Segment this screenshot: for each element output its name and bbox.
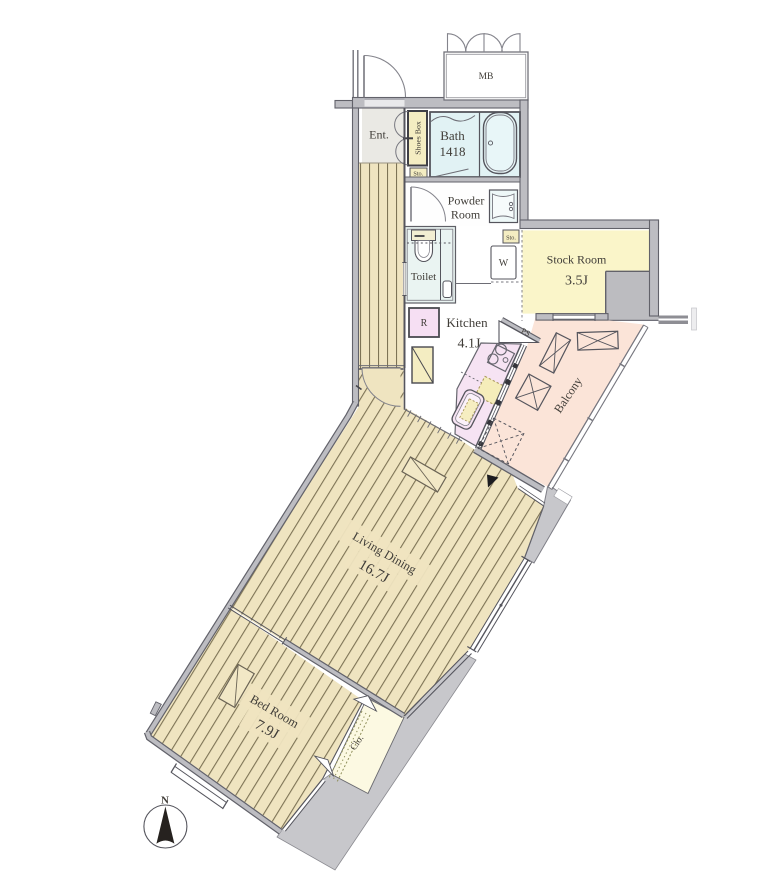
svg-text:Stock Room: Stock Room (547, 253, 607, 267)
svg-text:Sto.: Sto. (413, 170, 423, 177)
svg-text:Kitchen: Kitchen (446, 315, 488, 330)
svg-text:W: W (499, 258, 509, 269)
svg-text:Toilet: Toilet (411, 271, 437, 283)
svg-text:Shoes Box: Shoes Box (414, 121, 423, 155)
svg-text:1418: 1418 (440, 144, 466, 159)
svg-text:Powder: Powder (448, 194, 485, 208)
svg-text:Bath: Bath (440, 128, 465, 143)
svg-text:3.5J: 3.5J (565, 274, 589, 289)
svg-text:4.1J: 4.1J (458, 337, 482, 352)
svg-text:Ent.: Ent. (369, 128, 389, 142)
svg-text:R: R (421, 318, 428, 329)
svg-text:Room: Room (451, 208, 481, 222)
svg-text:MB: MB (479, 72, 494, 82)
svg-text:Sto.: Sto. (506, 235, 516, 242)
